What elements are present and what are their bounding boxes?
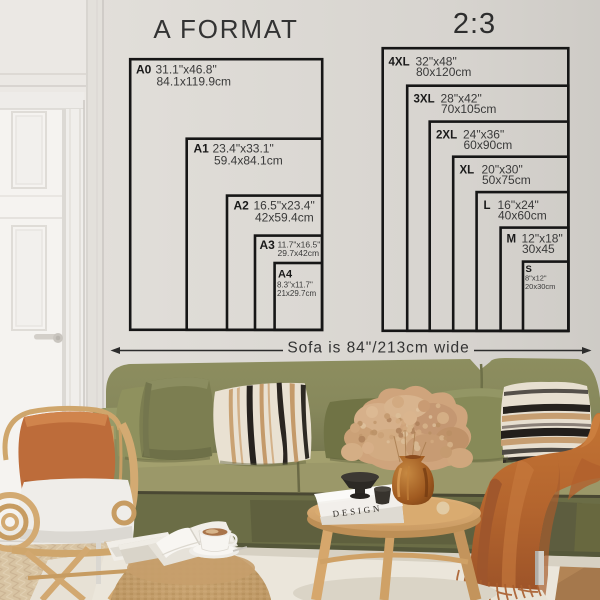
svg-text:A FORMAT: A FORMAT	[153, 14, 298, 44]
svg-text:M: M	[507, 234, 517, 246]
svg-text:60x90cm: 60x90cm	[464, 138, 513, 152]
svg-text:L: L	[484, 200, 491, 212]
svg-text:A0: A0	[136, 63, 152, 77]
svg-text:A1: A1	[194, 142, 210, 156]
svg-text:Sofa is 84"/213cm wide: Sofa is 84"/213cm wide	[287, 340, 469, 357]
svg-text:40x60cm: 40x60cm	[498, 209, 547, 223]
svg-text:A2: A2	[234, 199, 250, 213]
svg-text:A3: A3	[260, 238, 276, 252]
svg-text:2:3: 2:3	[453, 8, 496, 40]
svg-text:A4: A4	[278, 269, 293, 281]
svg-text:50x75cm: 50x75cm	[482, 173, 531, 187]
svg-text:59.4x84.1cm: 59.4x84.1cm	[214, 154, 283, 168]
svg-text:29.7x42cm: 29.7x42cm	[278, 248, 320, 258]
svg-text:42x59.4cm: 42x59.4cm	[255, 211, 314, 225]
svg-text:2XL: 2XL	[436, 130, 457, 142]
svg-text:21x29.7cm: 21x29.7cm	[277, 289, 316, 298]
svg-text:XL: XL	[460, 165, 475, 177]
svg-text:20x30cm: 20x30cm	[525, 282, 555, 291]
svg-text:70x105cm: 70x105cm	[441, 102, 496, 116]
svg-text:30x45: 30x45	[522, 242, 555, 256]
svg-text:4XL: 4XL	[389, 57, 410, 69]
svg-text:84.1x119.9cm: 84.1x119.9cm	[157, 75, 232, 89]
svg-text:3XL: 3XL	[414, 94, 435, 106]
svg-text:80x120cm: 80x120cm	[416, 65, 471, 79]
